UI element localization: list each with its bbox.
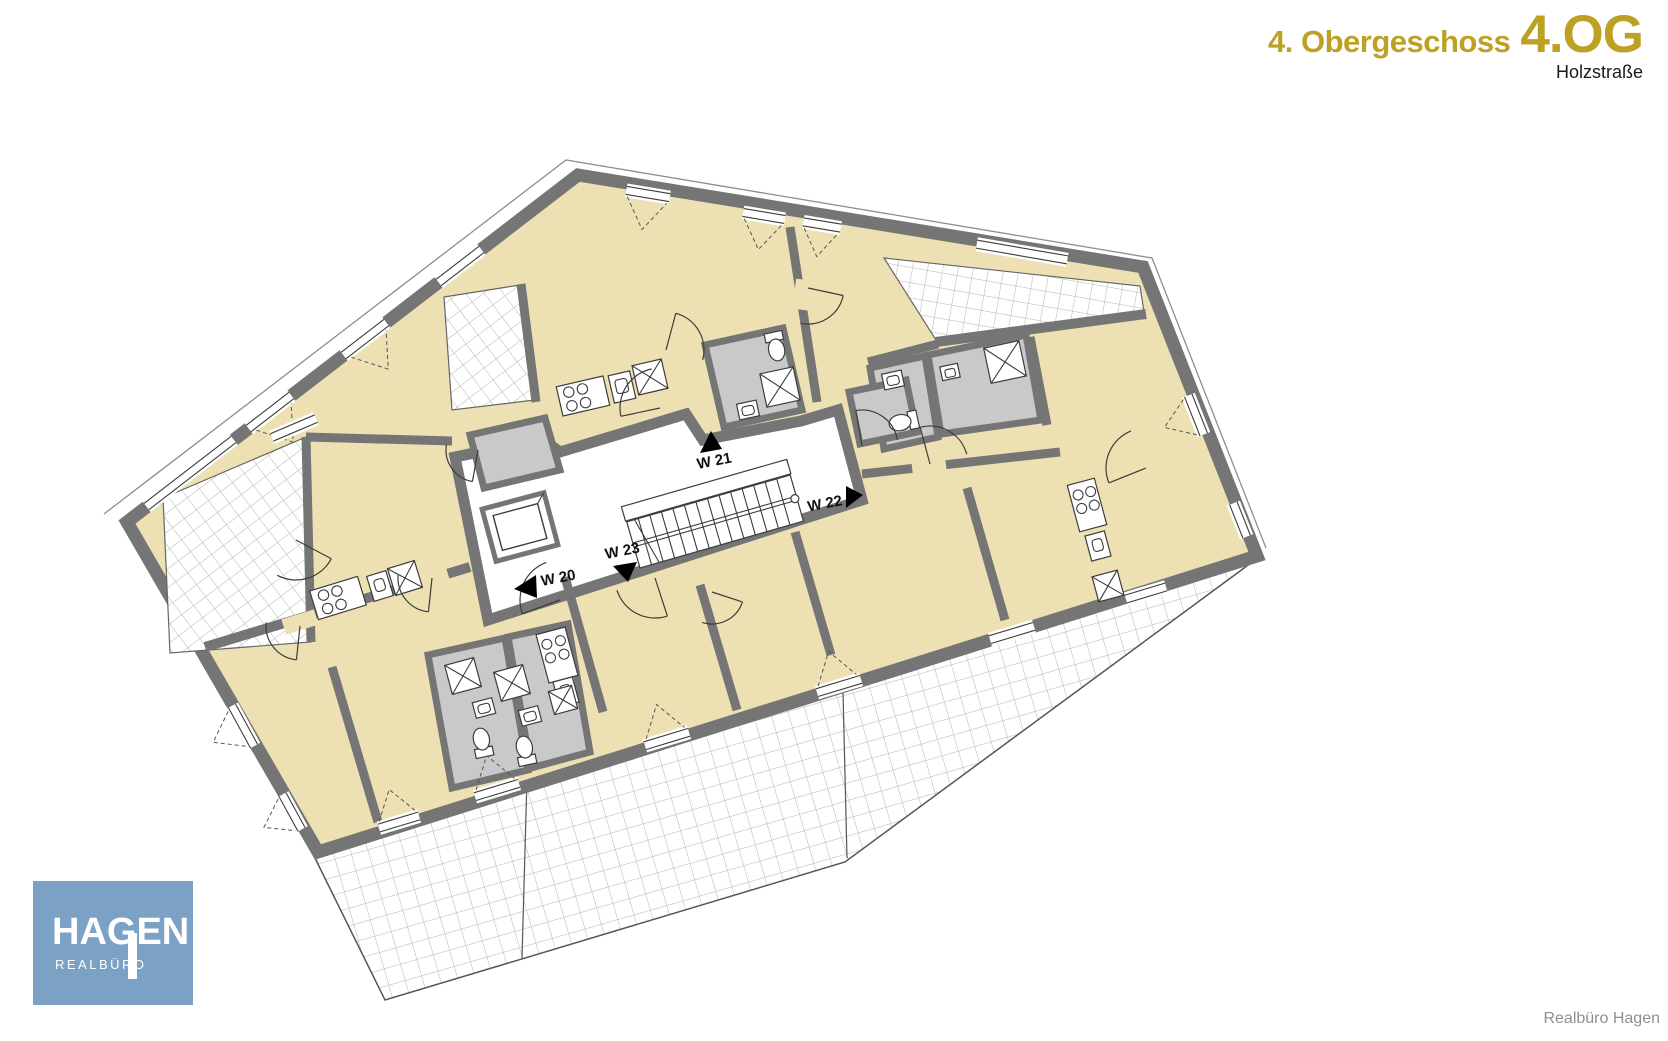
shower bbox=[984, 341, 1027, 384]
floor-code: 4.OG bbox=[1520, 8, 1643, 61]
credit-text: Realbüro Hagen bbox=[1543, 1010, 1660, 1028]
title-row: 4. Obergeschoss 4.OG bbox=[1268, 8, 1643, 61]
shower bbox=[760, 367, 800, 407]
sink bbox=[737, 400, 760, 420]
sink bbox=[940, 363, 961, 380]
logo-g-tail bbox=[128, 933, 137, 979]
logo-subtitle: REALBÜRO bbox=[55, 957, 147, 972]
logo-name: HAGEN bbox=[52, 911, 189, 954]
hagen-logo: HAGEN REALBÜRO bbox=[33, 881, 193, 1005]
sink bbox=[882, 370, 905, 390]
shower bbox=[548, 685, 577, 714]
shower bbox=[632, 359, 668, 395]
floor-name: 4. Obergeschoss bbox=[1268, 26, 1510, 57]
header: 4. Obergeschoss 4.OG Holzstraße bbox=[1268, 8, 1643, 81]
loggia-northwest bbox=[444, 284, 536, 410]
page: W 21 W 20 W 23 W 22 4. Obergeschoss 4.OG… bbox=[0, 0, 1668, 1041]
street-name: Holzstraße bbox=[1268, 63, 1643, 81]
floor-plan-svg: W 21 W 20 W 23 W 22 bbox=[0, 0, 1668, 1041]
